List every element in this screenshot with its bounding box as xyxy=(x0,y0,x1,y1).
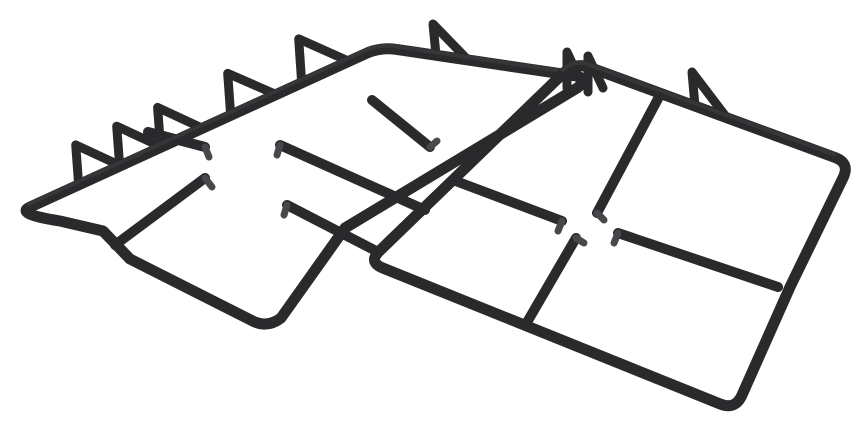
finger-nub xyxy=(558,221,562,231)
finger-nub xyxy=(597,213,604,220)
right-grate-finger-nubs xyxy=(558,213,618,243)
product-photo-stage xyxy=(0,0,866,448)
left-grate xyxy=(26,24,583,324)
finger-nub xyxy=(430,141,437,147)
left-grate-finger-2 xyxy=(280,145,425,210)
finger-nub xyxy=(277,145,280,155)
finger-nub xyxy=(614,233,618,243)
right-grate-frame xyxy=(374,66,845,406)
right-grate-finger-front xyxy=(526,238,576,324)
left-grate-frame xyxy=(26,49,583,324)
finger-nub xyxy=(205,147,209,157)
right-grate xyxy=(374,52,845,406)
pan-support-grates-image xyxy=(0,0,866,448)
left-grate-finger-5 xyxy=(372,100,430,147)
finger-nub xyxy=(205,178,212,187)
right-grate-finger-left xyxy=(453,180,562,221)
right-grate-finger-right xyxy=(618,233,778,287)
finger-nub xyxy=(576,238,584,243)
right-grate-finger-back xyxy=(597,95,660,213)
left-grate-finger-1 xyxy=(115,178,205,245)
finger-nub xyxy=(284,205,287,215)
